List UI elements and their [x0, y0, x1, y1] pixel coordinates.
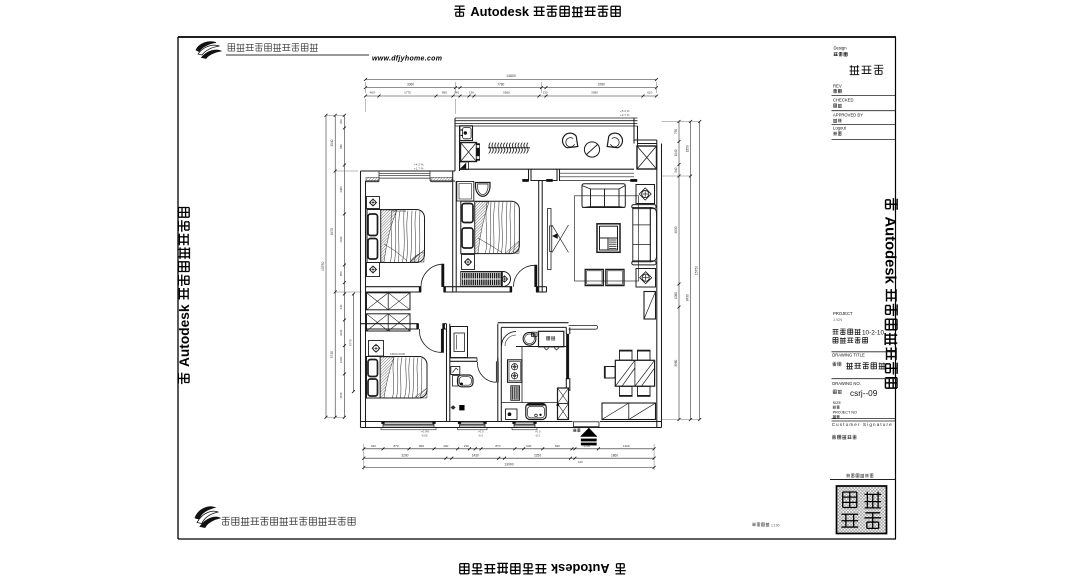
svg-text:870: 870 — [393, 444, 398, 448]
svg-text:360: 360 — [339, 119, 343, 124]
svg-text:3480: 3480 — [339, 186, 343, 193]
svg-text:Autodesk: Autodesk — [177, 304, 192, 367]
svg-text:400: 400 — [443, 444, 448, 448]
svg-text:-0.3: -0.3 — [478, 434, 483, 438]
svg-text:DRAWING TITLE: DRAWING TITLE — [832, 352, 865, 357]
svg-text:1500×2000: 1500×2000 — [391, 209, 406, 213]
svg-text:CHECKED: CHECKED — [833, 98, 853, 103]
svg-text:+2.7 %: +2.7 % — [620, 113, 630, 117]
svg-text:850: 850 — [339, 271, 343, 276]
svg-text:csrj--09: csrj--09 — [850, 389, 878, 398]
svg-text:1400: 1400 — [623, 444, 630, 448]
svg-text:6470: 6470 — [330, 228, 334, 235]
svg-text:460: 460 — [370, 91, 375, 95]
svg-text:PROJECT NO: PROJECT NO — [833, 411, 857, 415]
svg-text:1540: 1540 — [339, 392, 343, 399]
svg-text:750: 750 — [674, 129, 678, 135]
svg-text:430: 430 — [371, 444, 376, 448]
svg-text:15750: 15750 — [695, 266, 699, 276]
svg-text:4030: 4030 — [674, 226, 678, 233]
svg-text:130: 130 — [469, 91, 474, 95]
svg-text:120: 120 — [578, 460, 583, 464]
svg-text:240: 240 — [454, 91, 459, 95]
svg-text:Autodesk: Autodesk — [470, 4, 530, 19]
svg-text:5560: 5560 — [503, 91, 510, 95]
svg-text:865: 865 — [442, 91, 447, 95]
svg-text:8430: 8430 — [685, 294, 689, 301]
svg-text:1080: 1080 — [674, 292, 678, 299]
svg-text:3290: 3290 — [401, 453, 408, 457]
svg-text:240: 240 — [339, 304, 343, 309]
svg-text:1775: 1775 — [404, 91, 411, 95]
svg-text:340: 340 — [674, 167, 678, 173]
svg-text:1700: 1700 — [583, 444, 590, 448]
svg-text:230: 230 — [464, 444, 469, 448]
svg-text:Design: Design — [834, 46, 848, 51]
svg-text:Logout: Logout — [833, 126, 847, 131]
svg-text:7780: 7780 — [497, 82, 504, 86]
svg-text:2250: 2250 — [534, 453, 541, 457]
svg-text:13000: 13000 — [504, 463, 514, 467]
svg-text:3240: 3240 — [339, 329, 343, 336]
svg-text:1500×2000: 1500×2000 — [390, 352, 405, 356]
svg-text:5740: 5740 — [330, 351, 334, 358]
svg-text:REV: REV — [833, 84, 842, 89]
svg-text:3060: 3060 — [407, 82, 414, 86]
svg-text:870: 870 — [495, 444, 500, 448]
svg-text:14800: 14800 — [506, 74, 516, 78]
svg-text:1850: 1850 — [685, 145, 689, 152]
svg-text:3980: 3980 — [674, 359, 678, 366]
svg-text:1860: 1860 — [611, 453, 618, 457]
svg-text:www.dfjyhome.com: www.dfjyhome.com — [372, 56, 442, 63]
svg-text:980: 980 — [339, 144, 343, 149]
svg-text:-0.3: -0.3 — [535, 434, 540, 438]
svg-text:5770: 5770 — [349, 339, 353, 346]
svg-text:640: 640 — [555, 444, 560, 448]
svg-text:+1.7 %: +1.7 % — [414, 167, 424, 171]
svg-text:1540: 1540 — [330, 139, 334, 146]
svg-text:15750: 15750 — [321, 261, 325, 271]
svg-text:3780: 3780 — [598, 82, 605, 86]
svg-text:1080: 1080 — [339, 356, 343, 363]
svg-text:1640: 1640 — [339, 236, 343, 243]
svg-text:130: 130 — [542, 91, 547, 95]
svg-text:-0.05: -0.05 — [421, 434, 428, 438]
svg-text:Autodesk: Autodesk — [550, 561, 610, 576]
svg-text:APPROVED BY: APPROVED BY — [833, 113, 863, 118]
svg-text:J /CN: J /CN — [833, 318, 842, 322]
svg-text:800: 800 — [419, 444, 424, 448]
svg-text:1540: 1540 — [674, 149, 678, 156]
svg-text:PROJECT: PROJECT — [833, 311, 853, 316]
svg-text:SIZE: SIZE — [833, 401, 842, 405]
svg-text:10-2-10: 10-2-10 — [862, 329, 884, 336]
svg-text:DRAWING NO.: DRAWING NO. — [832, 381, 861, 386]
svg-text:1430: 1430 — [472, 453, 479, 457]
svg-text:600: 600 — [526, 444, 531, 448]
svg-text:1:100: 1:100 — [771, 524, 780, 528]
svg-text:610: 610 — [647, 91, 652, 95]
svg-text:3090: 3090 — [591, 91, 598, 95]
